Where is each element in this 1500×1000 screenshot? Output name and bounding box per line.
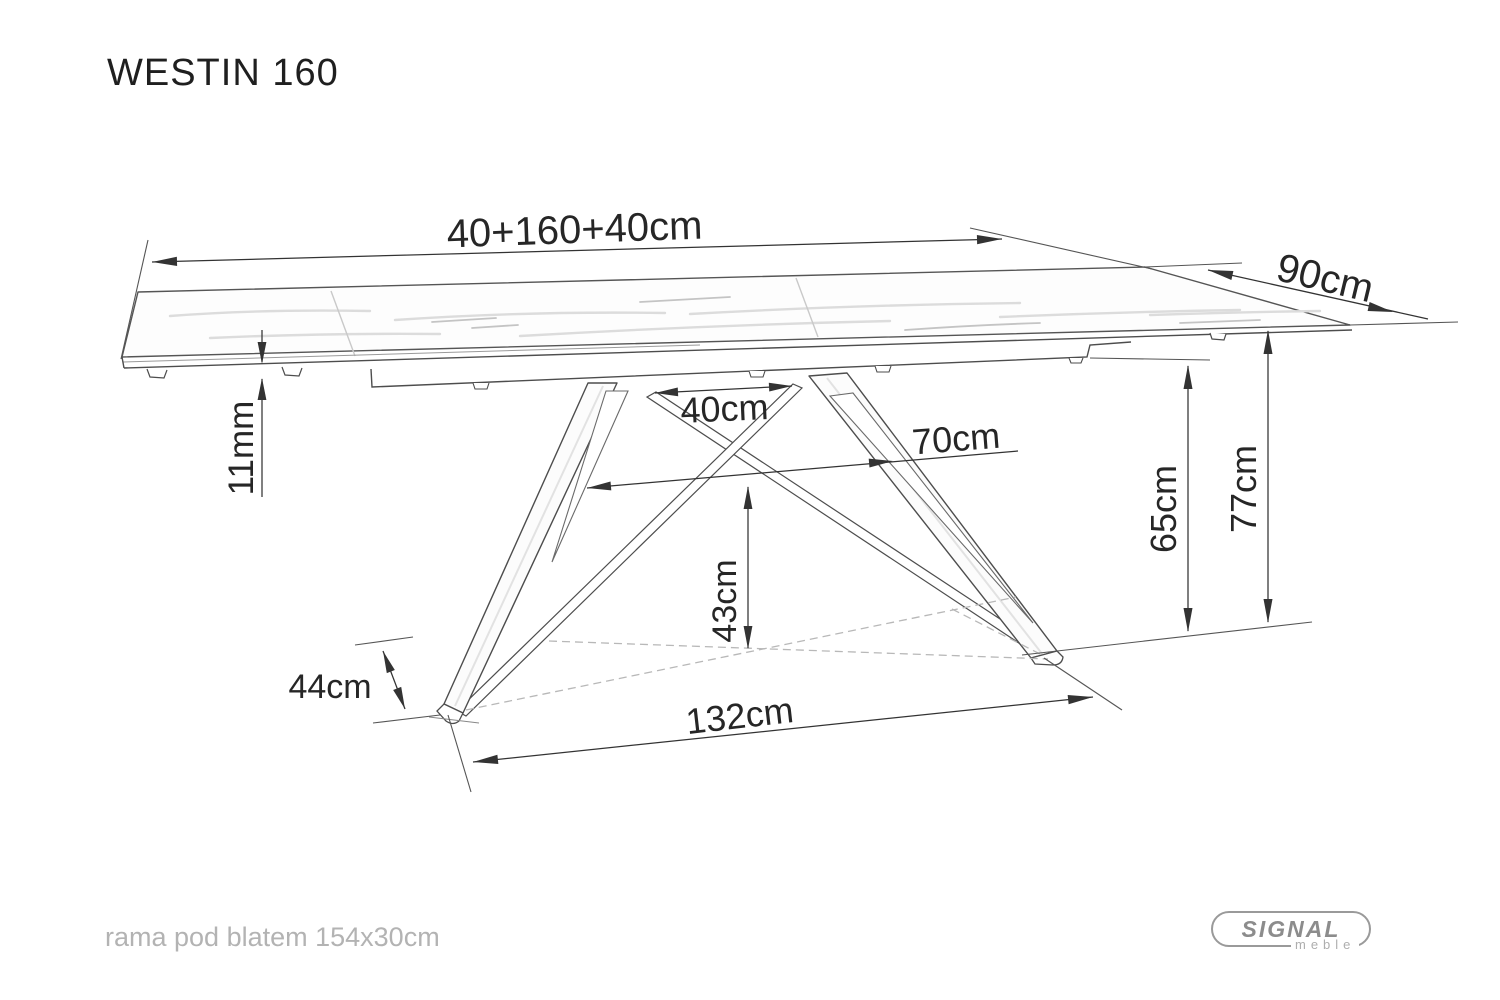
dim-table-height: 77cm [1223, 445, 1264, 533]
page: WESTIN 160 [0, 0, 1500, 1000]
logo-subtitle: meble [1291, 937, 1359, 952]
frame-size-note: rama pod blatem 154x30cm [105, 922, 440, 953]
dim-base-length: 132cm [684, 689, 796, 742]
dim-top-thickness: 11mm [222, 401, 261, 496]
dim-leg-top-gap: 40cm [680, 386, 770, 431]
leg-left-band [444, 383, 628, 713]
dim-depth: 90cm [1272, 246, 1377, 312]
dim-base-center-height: 43cm [706, 559, 744, 642]
tabletop [122, 267, 1352, 378]
dim-total-length: 40+160+40cm [446, 204, 703, 257]
dim-leg-mid-span: 70cm [911, 415, 1002, 463]
table-dimension-drawing: 40+160+40cm 90cm 11mm 40cm 70cm 43cm 65c… [0, 0, 1500, 1000]
dim-foot-width: 44cm [288, 668, 371, 706]
leg-brace-right-to-left-foot [457, 384, 802, 716]
signal-meble-logo: SIGNAL meble [1211, 911, 1371, 957]
dim-under-frame-height: 65cm [1143, 465, 1184, 553]
leg-right-band [809, 373, 1057, 658]
